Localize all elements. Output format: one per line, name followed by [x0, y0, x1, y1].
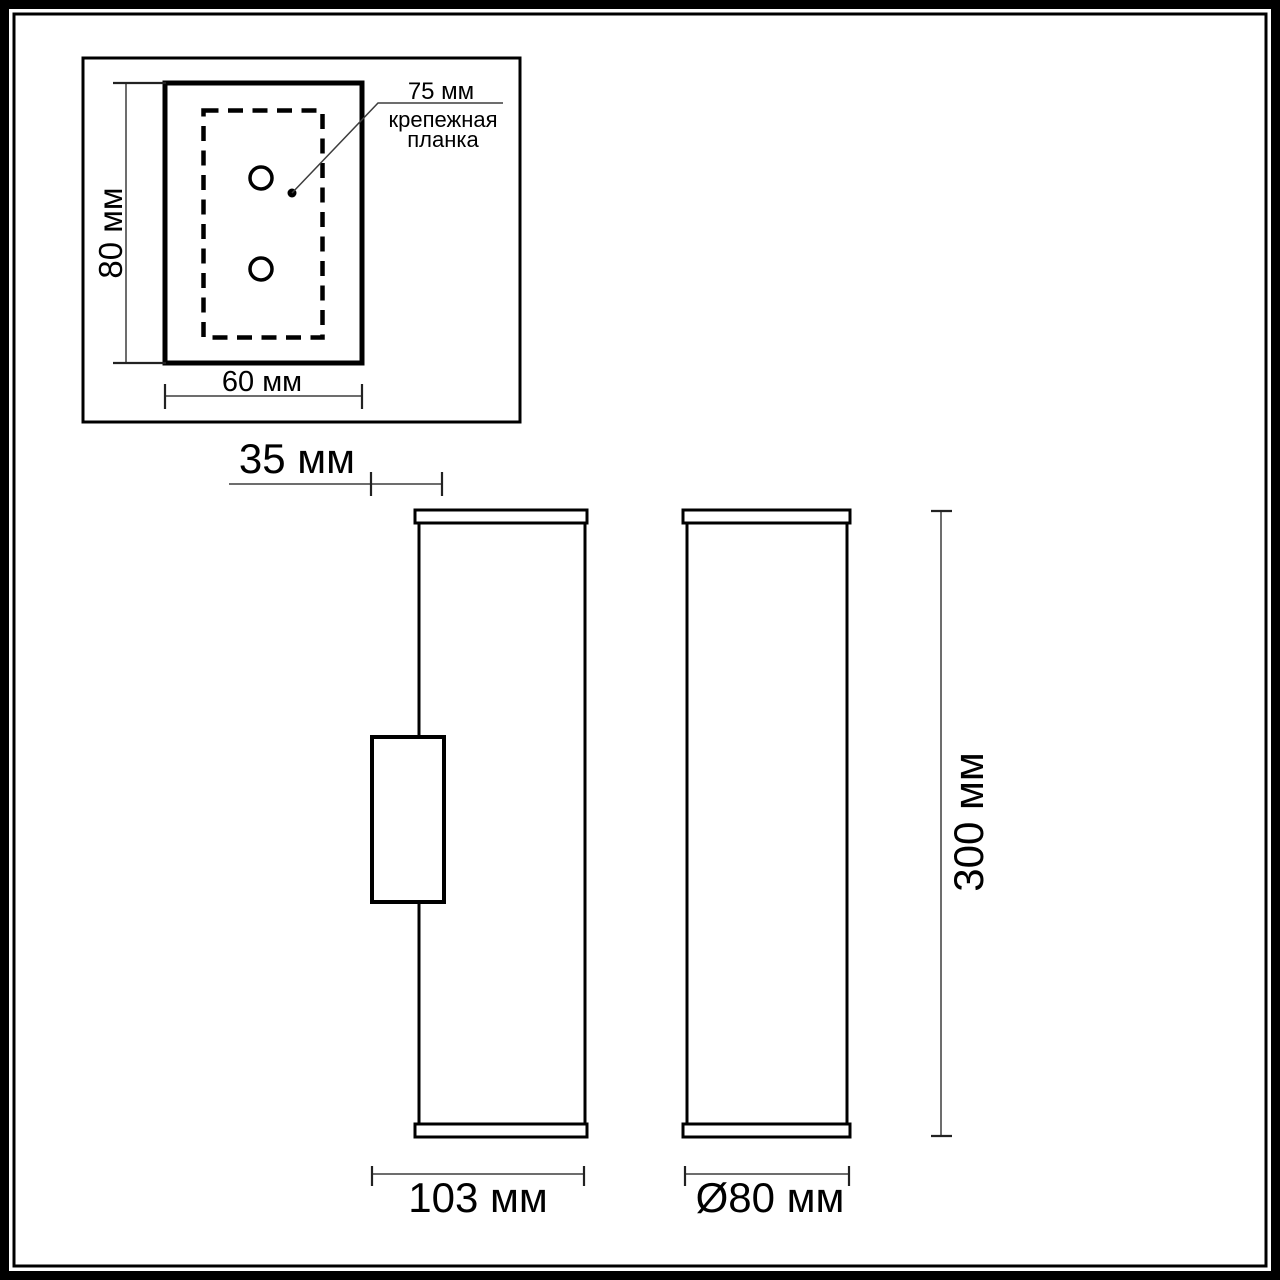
front-view-top-cap [683, 510, 850, 523]
side-view-top-cap [415, 510, 587, 523]
bracket-size-label: 75 мм [408, 78, 474, 105]
diameter-label: Ø80 мм [696, 1174, 845, 1221]
side-view-bottom-cap [415, 1124, 587, 1137]
plate-height-dimension: 80 мм [92, 83, 166, 363]
plate-height-label: 80 мм [92, 187, 129, 278]
plate-width-label: 60 мм [222, 366, 302, 398]
junction-box [372, 737, 444, 902]
drawing-canvas: 75 мм крепежная планка 80 мм 60 мм [0, 0, 1280, 1280]
diameter-dimension: Ø80 мм [685, 1166, 849, 1221]
mounting-plate-inset: 75 мм крепежная планка 80 мм 60 мм [83, 58, 520, 422]
technical-drawing: 75 мм крепежная планка 80 мм 60 мм [0, 0, 1280, 1280]
height-label: 300 мм [945, 752, 992, 892]
height-dimension: 300 мм [931, 511, 992, 1136]
front-view-bottom-cap [683, 1124, 850, 1137]
total-depth-label: 103 мм [408, 1174, 548, 1221]
plate-width-dimension: 60 мм [165, 366, 362, 409]
total-depth-dimension: 103 мм [372, 1166, 584, 1221]
bracket-name-line2: планка [407, 127, 479, 152]
front-view-body [687, 523, 847, 1124]
bracket-depth-label: 35 мм [239, 435, 355, 482]
lamp-front-view [683, 510, 850, 1137]
mounting-plate-outline [165, 83, 362, 363]
lamp-side-view [372, 510, 587, 1137]
bracket-depth-dimension: 35 мм [229, 435, 442, 496]
